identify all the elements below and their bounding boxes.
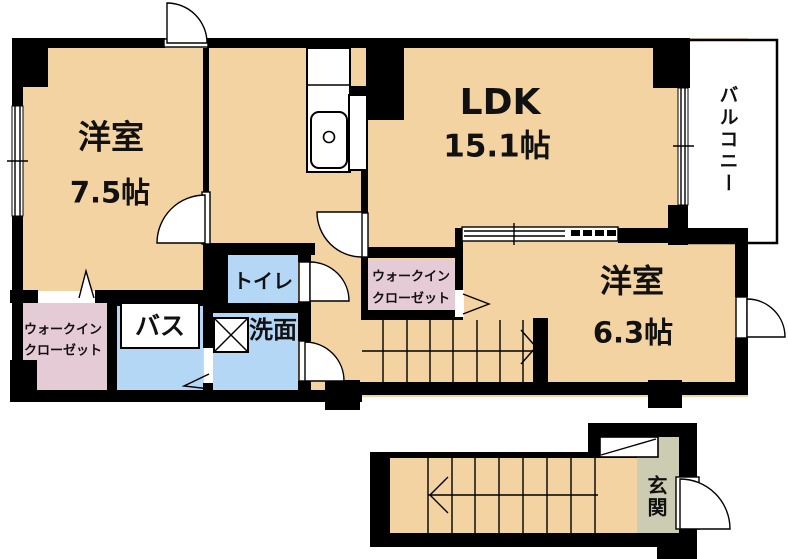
sink-drain xyxy=(324,132,335,143)
shoe-cabinet xyxy=(600,437,658,457)
wic1-label-line1: ウォークイン xyxy=(24,324,102,337)
room2-name-label: 洋室 xyxy=(600,265,664,297)
door-top-swing xyxy=(167,3,207,43)
door-room2-swing xyxy=(747,299,785,337)
entrance-label: 玄関 xyxy=(646,475,666,519)
room1-size-label: 7.5帖 xyxy=(70,179,150,208)
entrance-block xyxy=(370,423,730,559)
door-toilet-gap xyxy=(299,262,310,302)
wic2-label-line1: ウォークイン xyxy=(372,271,450,284)
washing-machine xyxy=(214,318,248,352)
room2-size-label: 6.3帖 xyxy=(593,319,673,348)
ldk-name-label: LDK xyxy=(460,85,541,121)
room1-name-label: 洋室 xyxy=(78,121,144,154)
door-bath-gap xyxy=(204,348,213,383)
ldk-size-label: 15.1帖 xyxy=(443,132,551,163)
wic2-label-line2: クローゼット xyxy=(372,293,450,306)
door-room2-gap xyxy=(736,297,747,338)
door-entrance-swing xyxy=(680,479,730,529)
balcony-label: バルコニー xyxy=(718,85,737,195)
refrigerator-slot xyxy=(349,95,367,170)
door-wic2-gap xyxy=(455,290,464,317)
bath-label: バス xyxy=(135,314,185,339)
toilet-label: トイレ xyxy=(233,271,293,291)
wic1-label-line2: クローゼット xyxy=(24,345,102,358)
washroom-label: 洗面 xyxy=(249,318,297,342)
sliding-partition-ldk xyxy=(462,223,618,245)
floorplan: 洋室 7.5帖 LDK 15.1帖 バルコニー トイレ バス 洗面 ウォークイン… xyxy=(0,0,788,559)
